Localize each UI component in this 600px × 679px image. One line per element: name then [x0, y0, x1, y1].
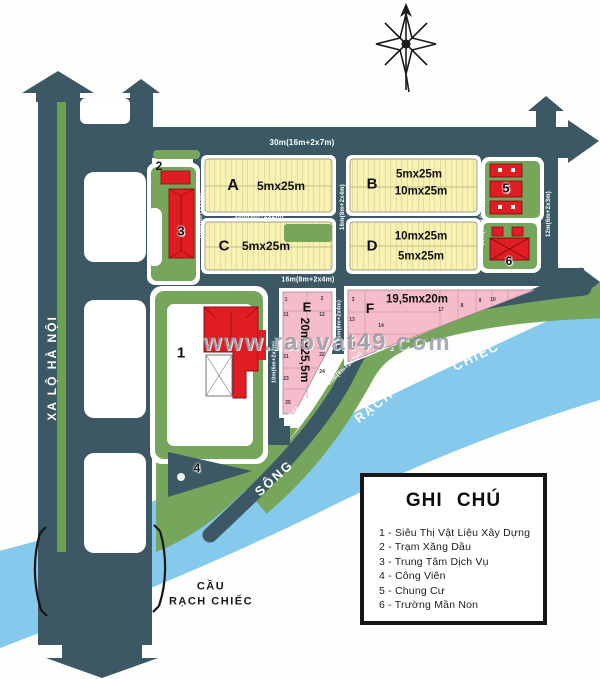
bridge-label-cau: CẦU — [197, 582, 225, 593]
legend-box: GHI CHÚ 1 - Siêu Thị Vật Liệu Xây Dựng 2… — [360, 473, 547, 625]
block-d-dim2: 5mx25m — [398, 251, 444, 263]
site-5-apartments — [485, 161, 540, 218]
block-c-green-patch — [284, 224, 332, 242]
road-dim-row2: 16m(8m+2x4m) — [281, 277, 334, 284]
lot-number: 17 — [438, 307, 444, 313]
block-f-dim: 19,5mx20m — [386, 294, 448, 306]
marker-6: 6 — [506, 255, 513, 267]
lot-number: 10 — [490, 297, 496, 303]
legend-item-6: 6 - Trường Mần Non — [379, 598, 543, 612]
lot-number: 13 — [349, 317, 355, 323]
green-strip — [153, 150, 200, 159]
road-dim-s1: 10m(6m+2x2m) — [198, 193, 204, 239]
block-b-dim1: 5mx25m — [396, 169, 442, 181]
block-a-dim: 5mx25m — [257, 180, 305, 192]
road-dim-row1: 10m(6m+2x2m) — [234, 214, 284, 221]
bridge-label-rach-chiec: RẠCH CHIẾC — [169, 597, 253, 608]
road-stub-top-left — [130, 92, 153, 132]
building-5a — [490, 164, 522, 177]
block-b-label: B — [367, 177, 378, 192]
road-dim-s3: 10m(6m+2x2m) — [480, 200, 486, 246]
marker-3: 3 — [177, 225, 184, 238]
block-a-label: A — [227, 178, 239, 194]
land-plan-map: XA LỘ HÀ NỘI 30m(16m+2x7m) 10m(6m+2x2m) … — [0, 0, 600, 679]
watermark: www.raovat49.com — [203, 329, 452, 357]
legend-item-1: 1 - Siêu Thị Vật Liệu Xây Dựng — [379, 526, 543, 540]
road-name-xa-lo-ha-noi: XA LỘ HÀ NỘI — [46, 315, 58, 421]
block-d-dim1: 10mx25m — [395, 231, 447, 243]
road-stub-top-right — [536, 108, 556, 132]
lot-number: 11 — [283, 312, 288, 318]
lot-number: 25 — [285, 400, 291, 406]
legend-item-2: 2 - Trạm Xăng Dầu — [379, 540, 543, 554]
block-e-label: E — [303, 301, 312, 314]
marker-4: 4 — [194, 462, 201, 474]
site-2-3-strip — [147, 167, 196, 281]
lot-number: 23 — [283, 376, 289, 382]
block-b-dim2: 10mx25m — [395, 186, 447, 198]
legend-items: 1 - Siêu Thị Vật Liệu Xây Dựng 2 - Trạm … — [379, 526, 543, 612]
legend-item-3: 3 - Trung Tâm Dịch Vụ — [379, 555, 543, 569]
road-dim-s4: 12m(6m+2x3m) — [546, 191, 552, 237]
lot-number: 8 — [461, 303, 464, 309]
block-d-label: D — [367, 239, 378, 254]
block-f-label: F — [366, 301, 375, 315]
building-5c — [490, 201, 522, 214]
marker-2: 2 — [156, 160, 163, 172]
marker-5: 5 — [502, 182, 509, 195]
lot-number: 9 — [479, 298, 482, 304]
marker-1: 1 — [177, 346, 185, 361]
lot-number: 24 — [319, 369, 325, 375]
legend-item-4: 4 - Công Viên — [379, 569, 543, 583]
legend-item-5: 5 - Chung Cư — [379, 584, 543, 598]
legend-title: GHI CHÚ — [364, 490, 543, 512]
lot-number: 2 — [321, 296, 324, 302]
lot-number: 3 — [352, 297, 355, 303]
building-2-gas-station — [161, 171, 190, 184]
lot-number: 12 — [319, 312, 325, 318]
block-c-label: C — [219, 239, 230, 254]
road-dim-top: 30m(16m+2x7m) — [269, 139, 334, 147]
site-1-supermarket — [155, 291, 266, 459]
road-dim-s2: 16m(8m+2x4m) — [340, 184, 346, 230]
block-c-dim: 5mx25m — [242, 240, 290, 252]
lot-number: 1 — [285, 297, 288, 303]
